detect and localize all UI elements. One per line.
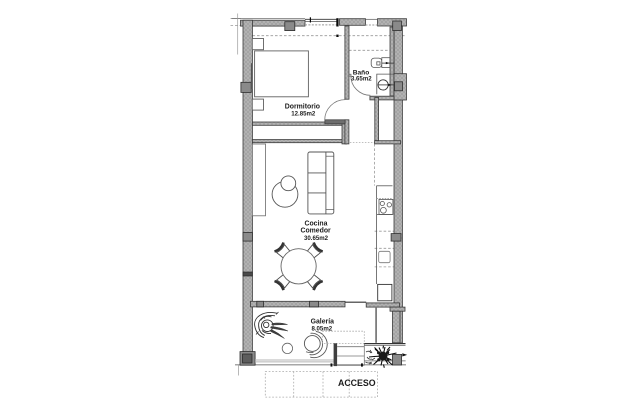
svg-text:12.85m2: 12.85m2	[291, 110, 316, 117]
svg-text:3.65m2: 3.65m2	[351, 76, 372, 83]
svg-text:8.05m2: 8.05m2	[311, 325, 332, 332]
svg-text:ACCESO: ACCESO	[338, 378, 376, 388]
svg-text:Cocina: Cocina	[305, 220, 328, 227]
svg-text:Comedor: Comedor	[300, 228, 331, 235]
svg-text:30.65m2: 30.65m2	[304, 235, 329, 242]
